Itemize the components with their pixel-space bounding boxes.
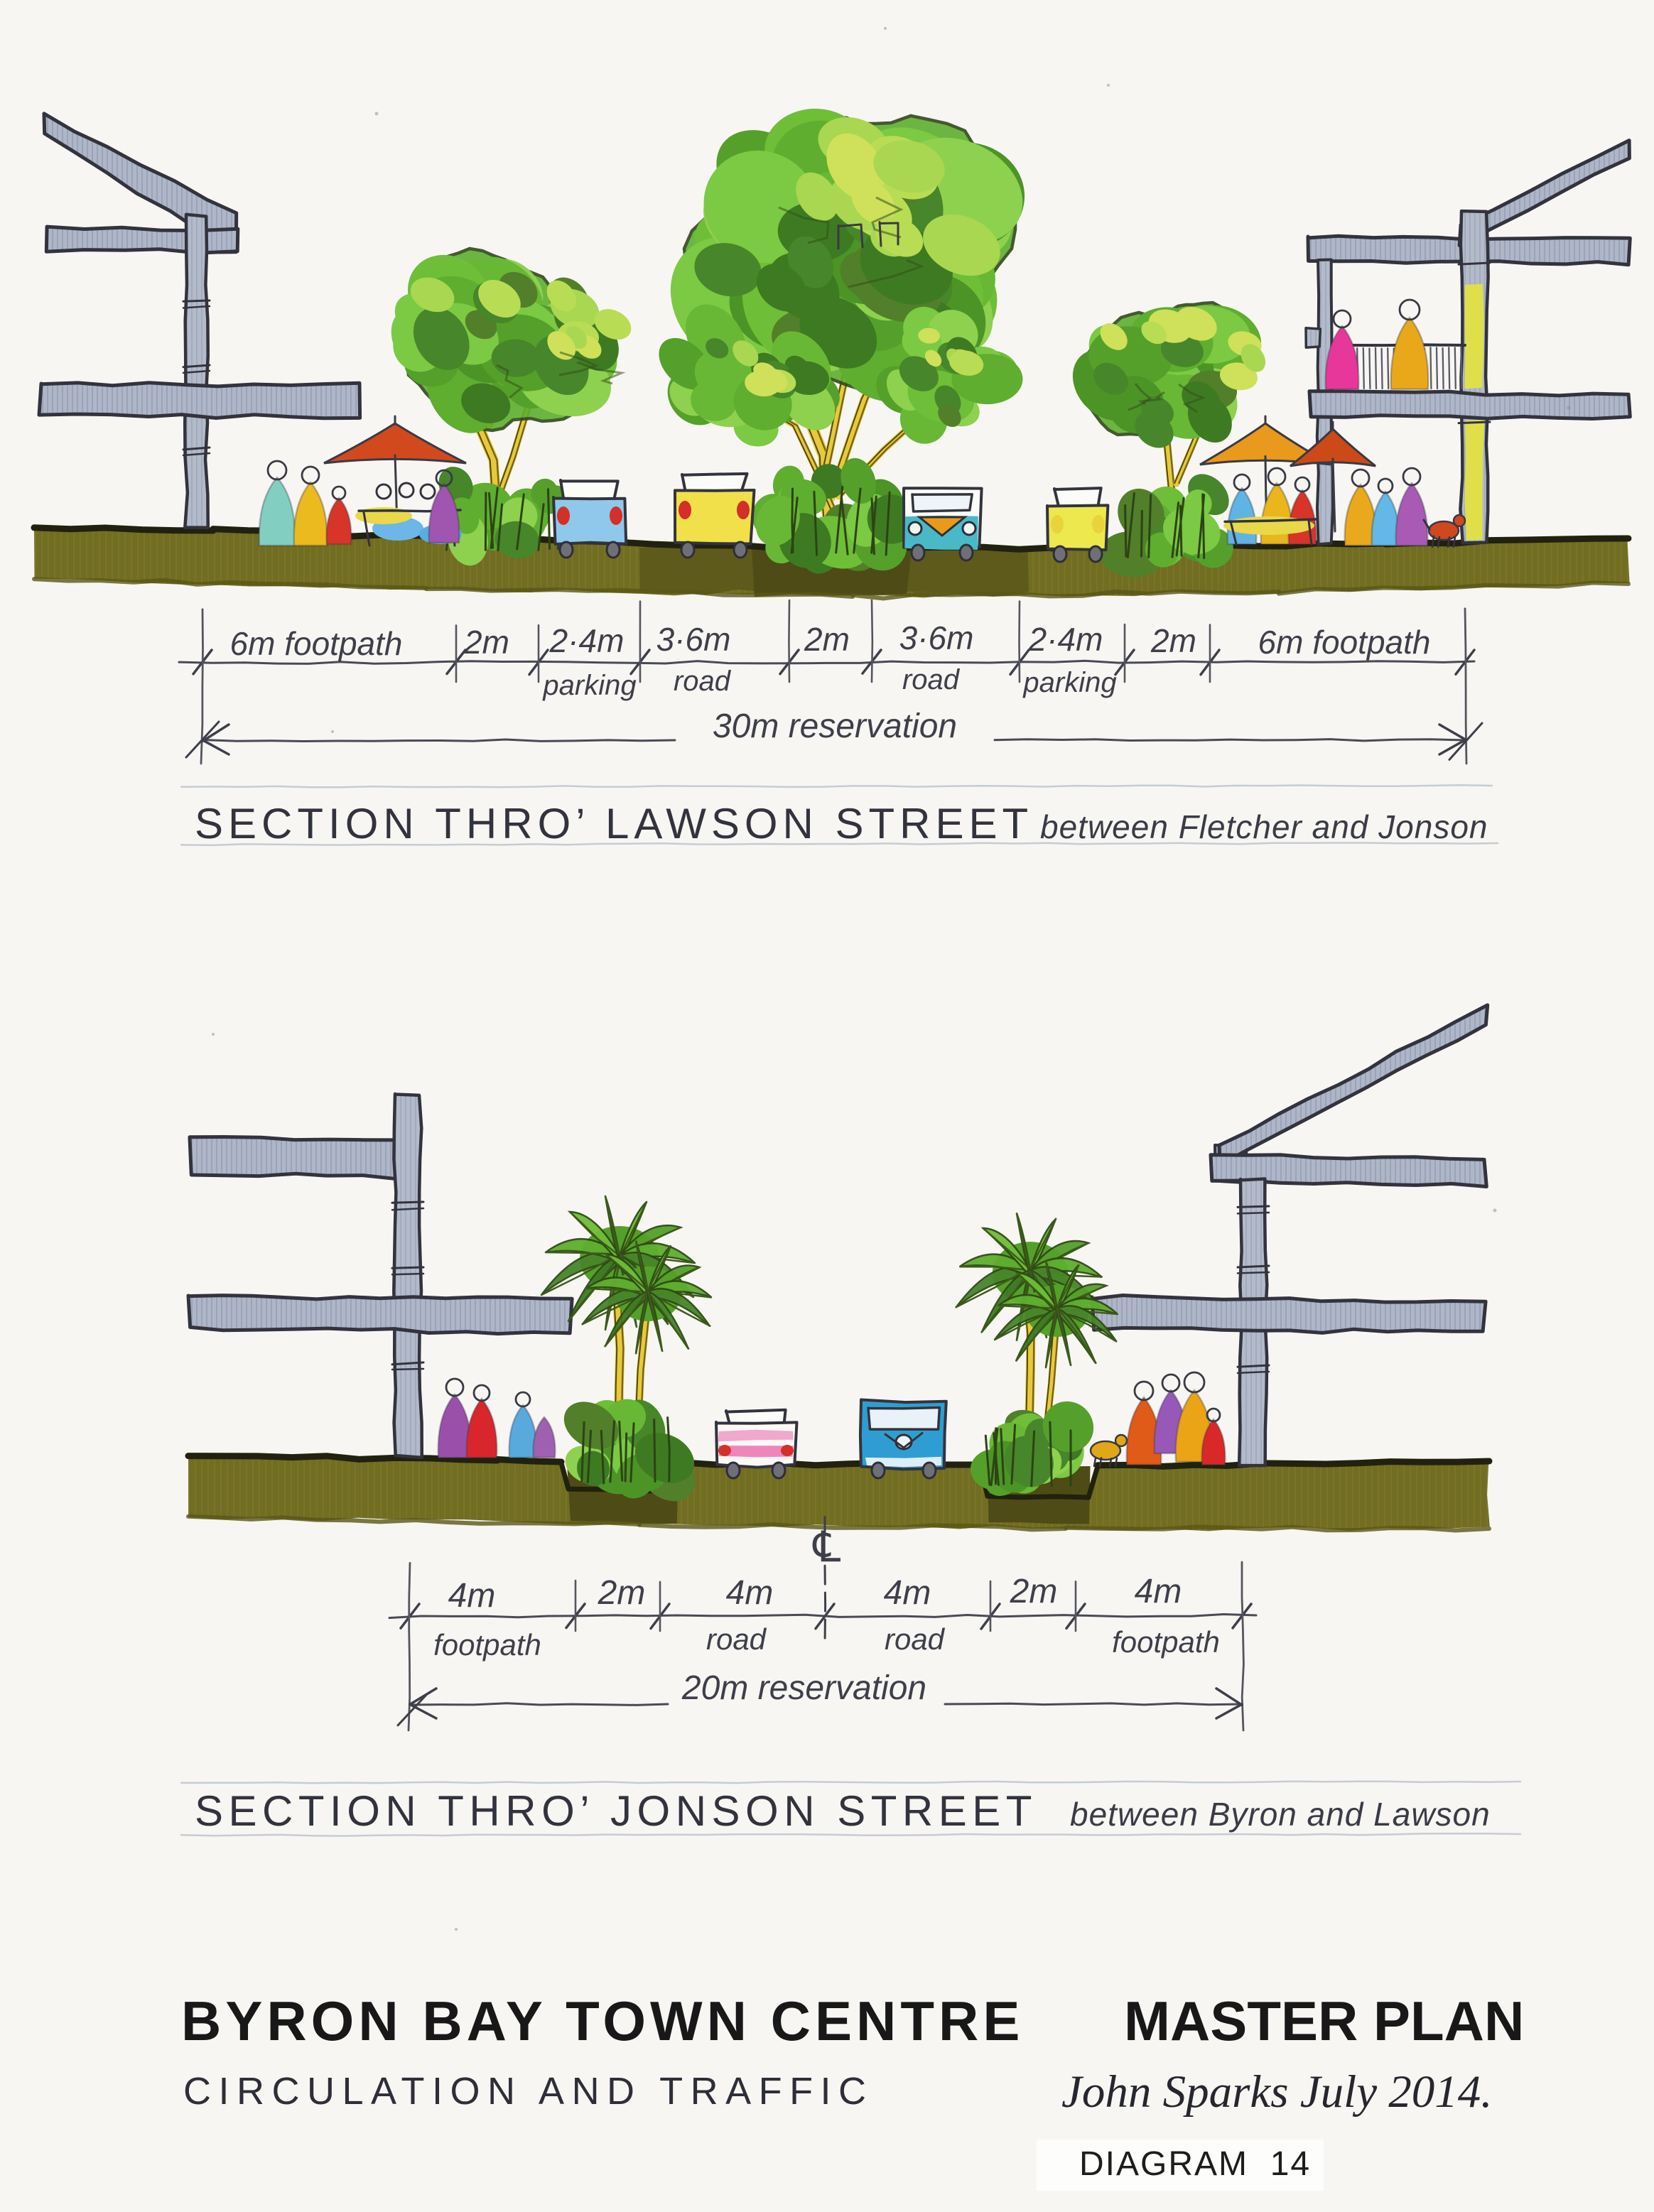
- svg-text:2m: 2m: [463, 624, 509, 661]
- svg-text:2m: 2m: [1150, 622, 1196, 659]
- svg-text:2·4m: 2·4m: [1028, 621, 1103, 658]
- svg-text:road: road: [902, 664, 961, 695]
- svg-text:4m: 4m: [726, 1574, 774, 1612]
- svg-text:road: road: [706, 1622, 767, 1656]
- svg-text:2m: 2m: [804, 621, 850, 658]
- svg-text:road: road: [885, 1622, 946, 1656]
- svg-text:parking: parking: [542, 670, 636, 701]
- svg-text:2m: 2m: [598, 1574, 646, 1612]
- svg-text:CIRCULATION AND TRAFFIC: CIRCULATION AND TRAFFIC: [183, 2070, 874, 2113]
- svg-text:4m: 4m: [884, 1574, 931, 1612]
- svg-text:parking: parking: [1022, 667, 1116, 698]
- svg-text:30m reservation: 30m reservation: [713, 707, 957, 745]
- svg-text:John Sparks July 2014.: John Sparks July 2014.: [1061, 2066, 1493, 2118]
- svg-text:4m: 4m: [448, 1577, 496, 1615]
- svg-text:2m: 2m: [1010, 1573, 1058, 1610]
- svg-text:2·4m: 2·4m: [549, 622, 625, 659]
- svg-text:SECTION THRO’ LAWSON STREET: SECTION THRO’ LAWSON STREET: [195, 800, 1033, 847]
- svg-text:between Fletcher and Jonson: between Fletcher and Jonson: [1040, 808, 1488, 845]
- svg-text:BYRON BAY TOWN CENTRE: BYRON BAY TOWN CENTRE: [181, 1990, 1024, 2052]
- svg-text:3·6m: 3·6m: [899, 619, 974, 656]
- svg-text:20m reservation: 20m reservation: [681, 1669, 926, 1707]
- svg-text:DIAGRAM 14: DIAGRAM 14: [1079, 2145, 1311, 2183]
- svg-text:6m footpath: 6m footpath: [230, 625, 403, 662]
- svg-text:footpath: footpath: [1112, 1625, 1220, 1659]
- svg-text:between Byron and Lawson: between Byron and Lawson: [1070, 1796, 1491, 1833]
- svg-text:road: road: [674, 666, 732, 697]
- svg-text:℄: ℄: [812, 1523, 841, 1571]
- svg-text:4m: 4m: [1135, 1573, 1182, 1610]
- svg-text:6m footpath: 6m footpath: [1258, 624, 1431, 661]
- svg-text:SECTION THRO’ JONSON STREET: SECTION THRO’ JONSON STREET: [195, 1787, 1037, 1835]
- svg-text:3·6m: 3·6m: [656, 621, 731, 658]
- svg-text:MASTER PLAN: MASTER PLAN: [1124, 1990, 1524, 2052]
- svg-text:footpath: footpath: [433, 1628, 541, 1661]
